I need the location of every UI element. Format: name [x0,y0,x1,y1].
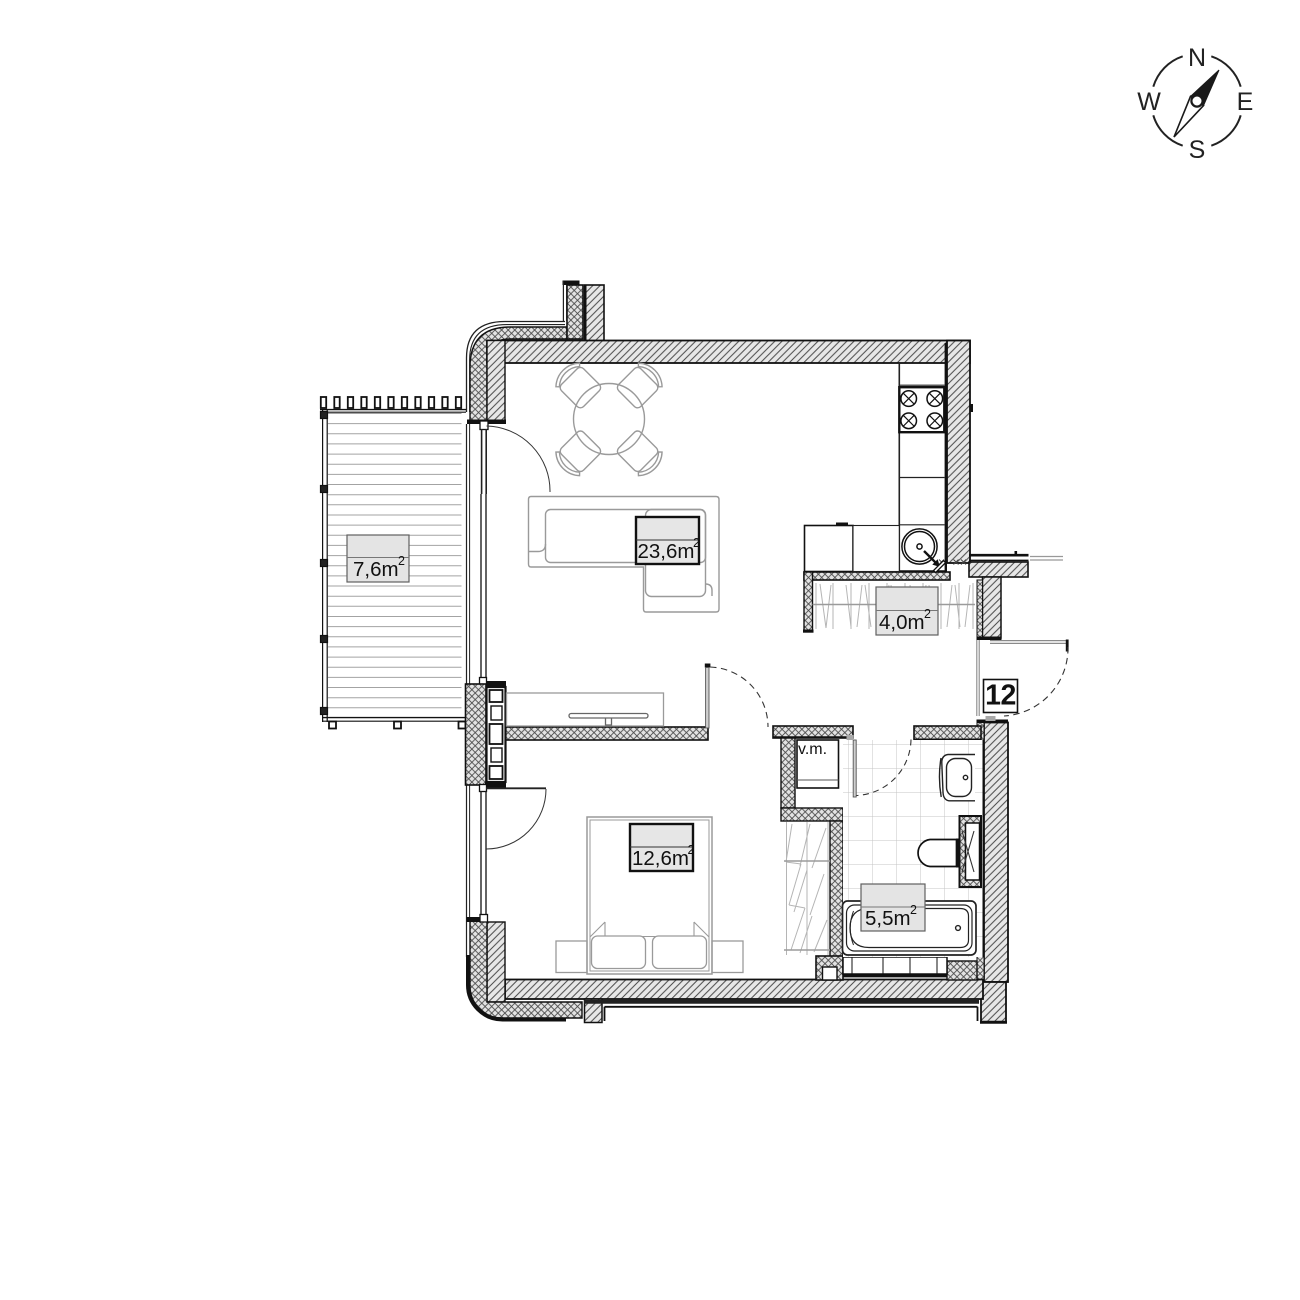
svg-text:23,6m: 23,6m [638,540,695,563]
svg-text:N: N [1188,44,1206,72]
svg-text:12: 12 [985,680,1016,712]
svg-text:4,0m: 4,0m [879,611,925,634]
svg-text:2: 2 [910,903,917,917]
svg-text:W: W [1137,88,1161,116]
svg-text:S: S [1189,136,1206,164]
svg-text:2: 2 [693,536,700,550]
svg-text:12,6m: 12,6m [632,847,689,870]
svg-text:v.m.: v.m. [798,741,827,758]
svg-text:E: E [1237,88,1254,116]
svg-text:7,6m: 7,6m [353,558,399,581]
svg-text:5,5m: 5,5m [865,907,911,930]
svg-text:2: 2 [924,607,931,621]
svg-text:2: 2 [398,554,405,568]
svg-text:2: 2 [688,843,695,857]
